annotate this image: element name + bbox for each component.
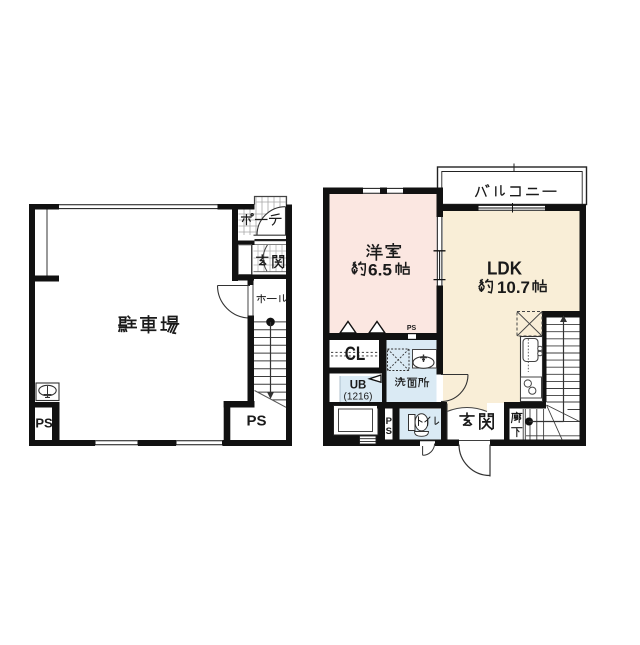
svg-text:6.5: 6.5 — [368, 262, 392, 280]
svg-text:S: S — [386, 426, 392, 437]
svg-text:(1216): (1216) — [344, 392, 373, 403]
svg-text:PS: PS — [407, 325, 417, 332]
svg-text:CL: CL — [345, 344, 366, 365]
svg-text:PS: PS — [35, 416, 53, 431]
svg-text:PS: PS — [246, 413, 266, 430]
svg-text:10.7: 10.7 — [497, 279, 530, 297]
svg-text:LDK: LDK — [487, 259, 522, 279]
svg-text:UB: UB — [350, 380, 367, 392]
